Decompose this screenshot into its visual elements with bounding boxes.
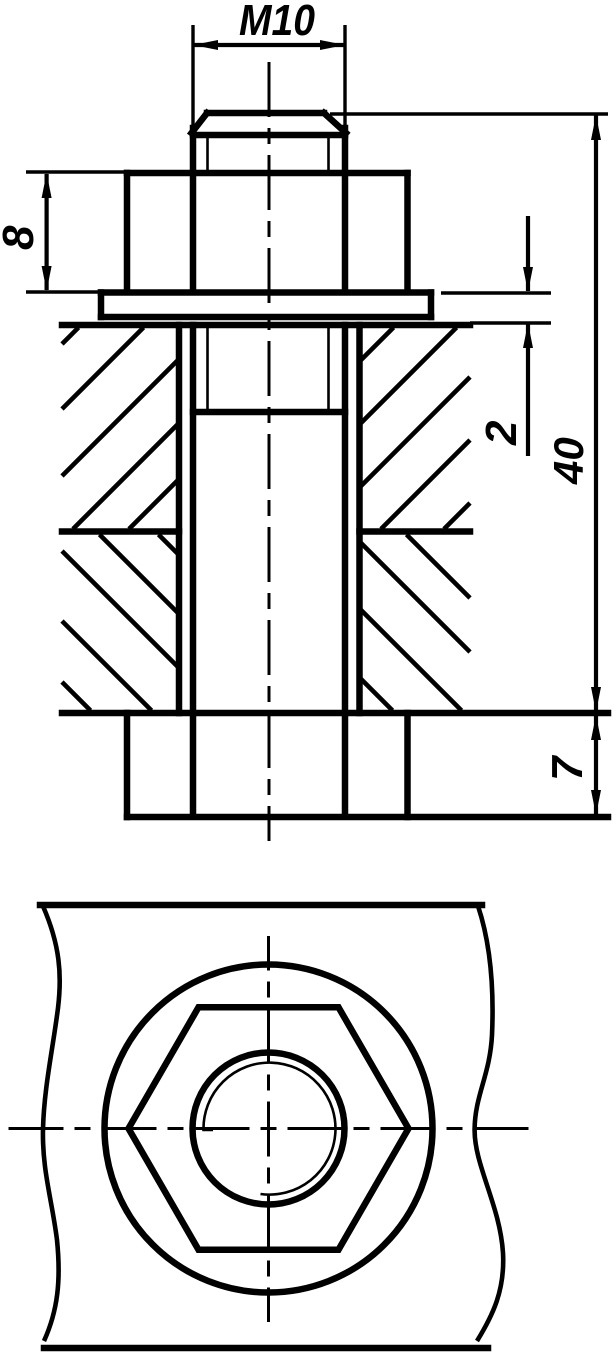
svg-text:2: 2 [477, 420, 526, 446]
svg-text:40: 40 [545, 437, 592, 485]
svg-text:M10: M10 [239, 0, 315, 45]
svg-text:7: 7 [543, 754, 592, 781]
svg-text:8: 8 [0, 225, 43, 250]
